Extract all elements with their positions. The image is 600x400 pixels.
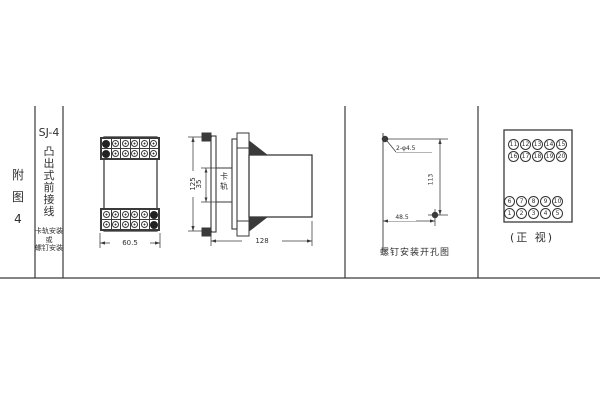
- terminal-screw-cell: [150, 149, 159, 158]
- screw-head-icon: [122, 150, 129, 157]
- type-label-wrap: 凸出式前接线: [35, 146, 63, 218]
- screw-head-icon: [131, 140, 138, 147]
- terminal-screw-cell: [131, 149, 140, 158]
- terminal-circle: 3: [528, 208, 539, 219]
- hole-horizontal-dimension: 48.5: [388, 214, 416, 221]
- screw-head-icon: [141, 140, 148, 147]
- terminal-screw-cell: [102, 220, 111, 229]
- terminal-circle: 13: [532, 139, 543, 150]
- terminal-circle: 16: [508, 151, 519, 162]
- terminal-screw-cell: [150, 210, 159, 219]
- terminal-group-bottom: 67891012345: [504, 196, 563, 219]
- terminal-circle: 8: [528, 196, 539, 207]
- screw-head-icon: [141, 150, 148, 157]
- screw-head-icon: [102, 140, 110, 148]
- screw-head-icon: [103, 221, 110, 228]
- terminal-circle: 11: [508, 139, 519, 150]
- terminal-row: 1112131415: [508, 139, 567, 150]
- terminal-screw-cell: [112, 220, 121, 229]
- terminal-row: 1617181920: [508, 151, 567, 162]
- model-label: SJ-4: [36, 126, 62, 139]
- type-label: 凸出式前接线: [44, 146, 55, 218]
- screw-head-icon: [150, 150, 157, 157]
- hole-size-note: 2-φ4.5: [396, 145, 434, 152]
- hole-vertical-dimension: 113: [428, 167, 435, 193]
- terminal-circle: 15: [556, 139, 567, 150]
- screw-head-icon: [150, 140, 157, 147]
- screw-head-icon: [122, 221, 129, 228]
- screw-head-icon: [112, 150, 119, 157]
- terminal-screw-cell: [112, 149, 121, 158]
- terminal-circle: 5: [552, 208, 563, 219]
- terminal-screw-cell: [121, 149, 130, 158]
- side-depth-dimension: 128: [242, 237, 282, 245]
- terminal-circle: 7: [516, 196, 527, 207]
- mounting-note: 卡轨安装 或 螺钉安装: [35, 227, 63, 253]
- screw-head-icon: [131, 211, 138, 218]
- terminal-screw-cell: [150, 139, 159, 148]
- mounting-note-line2: 或: [35, 236, 63, 245]
- terminal-screw-cell: [131, 210, 140, 219]
- screw-head-icon: [103, 211, 110, 218]
- screw-head-icon: [141, 221, 148, 228]
- terminal-circle: 20: [556, 151, 567, 162]
- terminal-screw-cell: [102, 149, 111, 158]
- terminal-screw-cell: [140, 220, 149, 229]
- terminal-screw-cell: [131, 139, 140, 148]
- terminal-view-caption: (正 视): [492, 229, 572, 245]
- terminal-screw-cell: [150, 220, 159, 229]
- terminal-screw-cell: [140, 139, 149, 148]
- figure-label: 附图4: [12, 164, 24, 230]
- terminal-circle: 9: [540, 196, 551, 207]
- terminal-circle: 1: [504, 208, 515, 219]
- terminal-row: 12345: [504, 208, 563, 219]
- screw-head-icon: [122, 140, 129, 147]
- terminal-circle: 14: [544, 139, 555, 150]
- terminal-screw-cell: [140, 149, 149, 158]
- terminal-row: 678910: [504, 196, 563, 207]
- terminal-screw-cell: [102, 210, 111, 219]
- terminal-screw-cell: [102, 139, 111, 148]
- screw-head-icon: [150, 211, 158, 219]
- rail-slot-dimension: 35: [195, 171, 203, 197]
- terminal-circle: 6: [504, 196, 515, 207]
- mounting-note-line1: 卡轨安装: [35, 227, 63, 236]
- terminal-screw-cell: [140, 210, 149, 219]
- mounting-note-line3: 螺钉安装: [35, 244, 63, 253]
- screw-head-icon: [112, 221, 119, 228]
- hole-diagram-caption: 螺钉安装开孔图: [355, 245, 475, 258]
- screw-head-icon: [150, 221, 158, 229]
- side-view-drawing: [188, 133, 312, 246]
- screw-head-icon: [122, 211, 129, 218]
- terminal-group-top: 11121314151617181920: [508, 139, 567, 162]
- front-view-bottom-terminal-block: [100, 208, 160, 231]
- rail-label: 卡轨: [220, 172, 228, 192]
- screw-head-icon: [131, 221, 138, 228]
- front-width-dimension: 60.5: [110, 239, 150, 247]
- terminal-screw-cell: [112, 139, 121, 148]
- title-block-lines: [0, 106, 600, 278]
- terminal-circle: 4: [540, 208, 551, 219]
- terminal-circle: 19: [544, 151, 555, 162]
- screw-head-icon: [112, 140, 119, 147]
- terminal-circle: 2: [516, 208, 527, 219]
- terminal-circle: 18: [532, 151, 543, 162]
- screw-head-icon: [102, 150, 110, 158]
- terminal-circle: 12: [520, 139, 531, 150]
- screw-head-icon: [141, 211, 148, 218]
- terminal-circle: 17: [520, 151, 531, 162]
- terminal-circle: 10: [552, 196, 563, 207]
- screw-head-icon: [131, 150, 138, 157]
- terminal-screw-cell: [112, 210, 121, 219]
- terminal-screw-cell: [131, 220, 140, 229]
- front-view-top-terminal-block: [100, 137, 160, 160]
- terminal-screw-cell: [121, 210, 130, 219]
- terminal-screw-cell: [121, 139, 130, 148]
- screw-head-icon: [112, 211, 119, 218]
- terminal-screw-cell: [121, 220, 130, 229]
